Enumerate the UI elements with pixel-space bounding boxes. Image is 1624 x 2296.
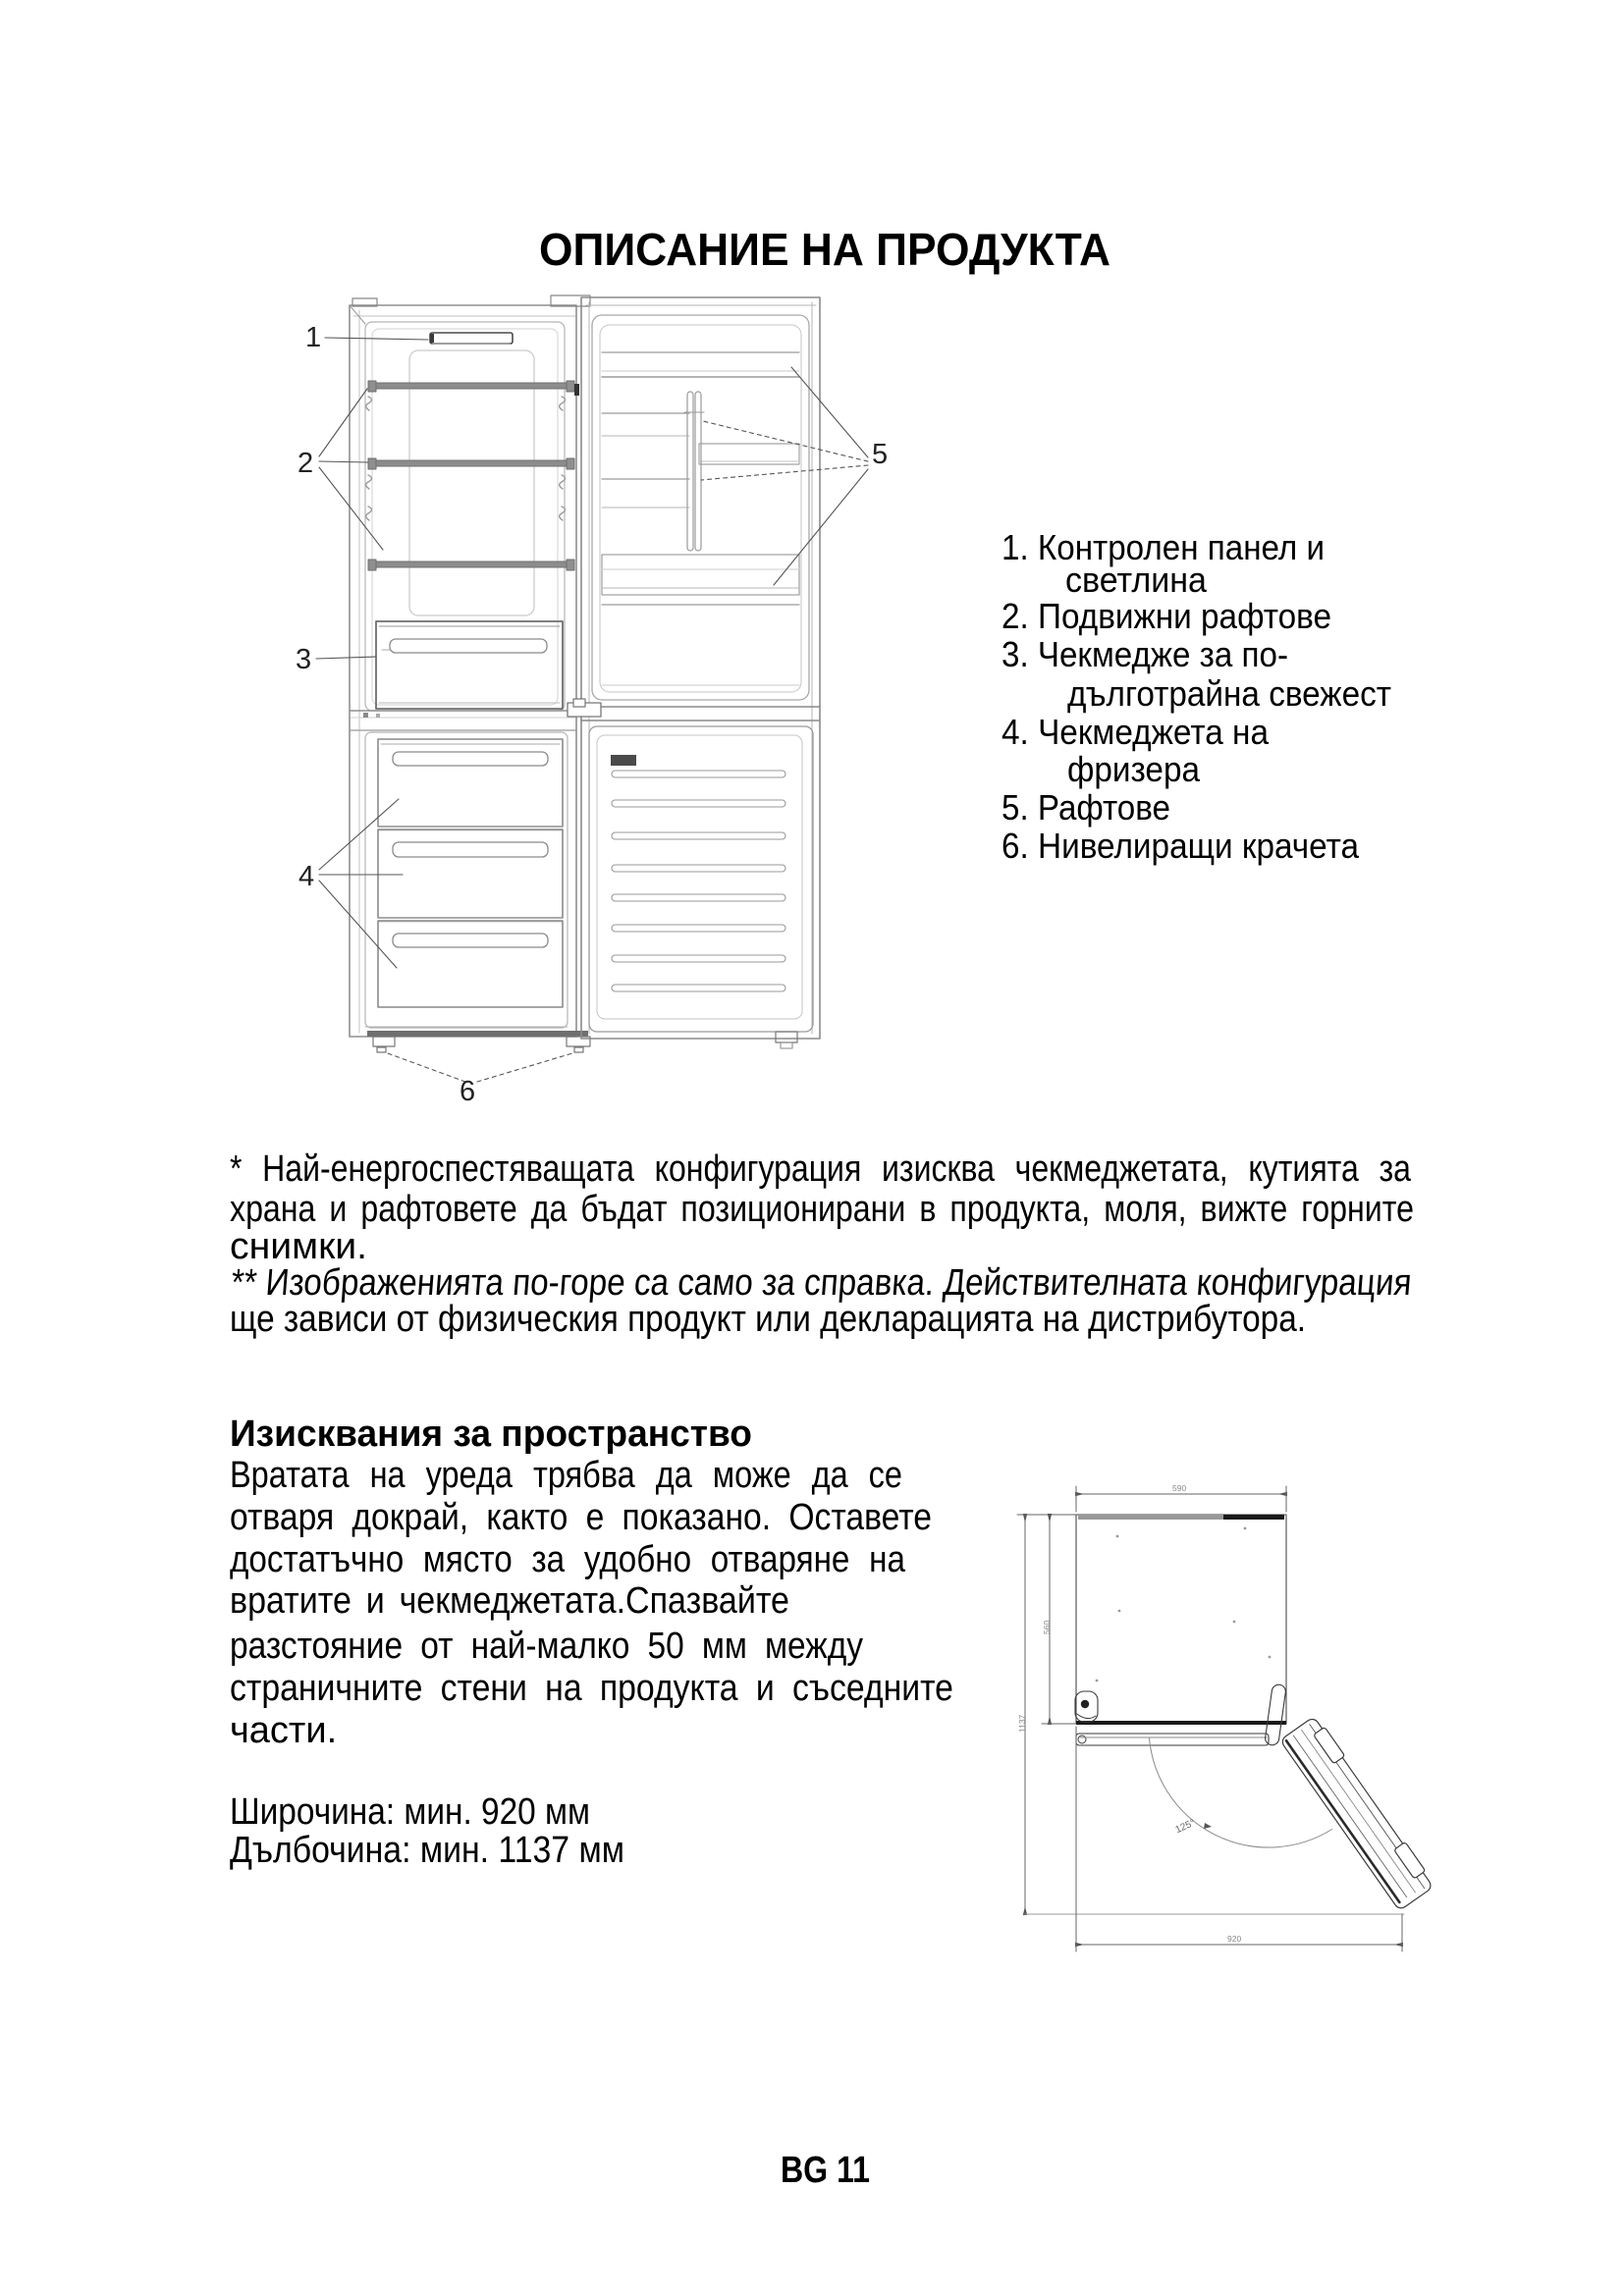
svg-text:125°: 125° bbox=[1174, 1818, 1197, 1836]
svg-text:590: 590 bbox=[1172, 1483, 1186, 1493]
svg-text:6: 6 bbox=[460, 1076, 475, 1107]
svg-text:1137: 1137 bbox=[1017, 1714, 1027, 1733]
svg-text:2: 2 bbox=[298, 448, 313, 479]
svg-text:1: 1 bbox=[305, 322, 321, 353]
svg-text:3: 3 bbox=[296, 644, 311, 675]
svg-text:4: 4 bbox=[298, 861, 314, 892]
svg-text:920: 920 bbox=[1227, 1934, 1241, 1944]
svg-text:5: 5 bbox=[872, 439, 888, 470]
svg-text:560: 560 bbox=[1042, 1621, 1052, 1634]
